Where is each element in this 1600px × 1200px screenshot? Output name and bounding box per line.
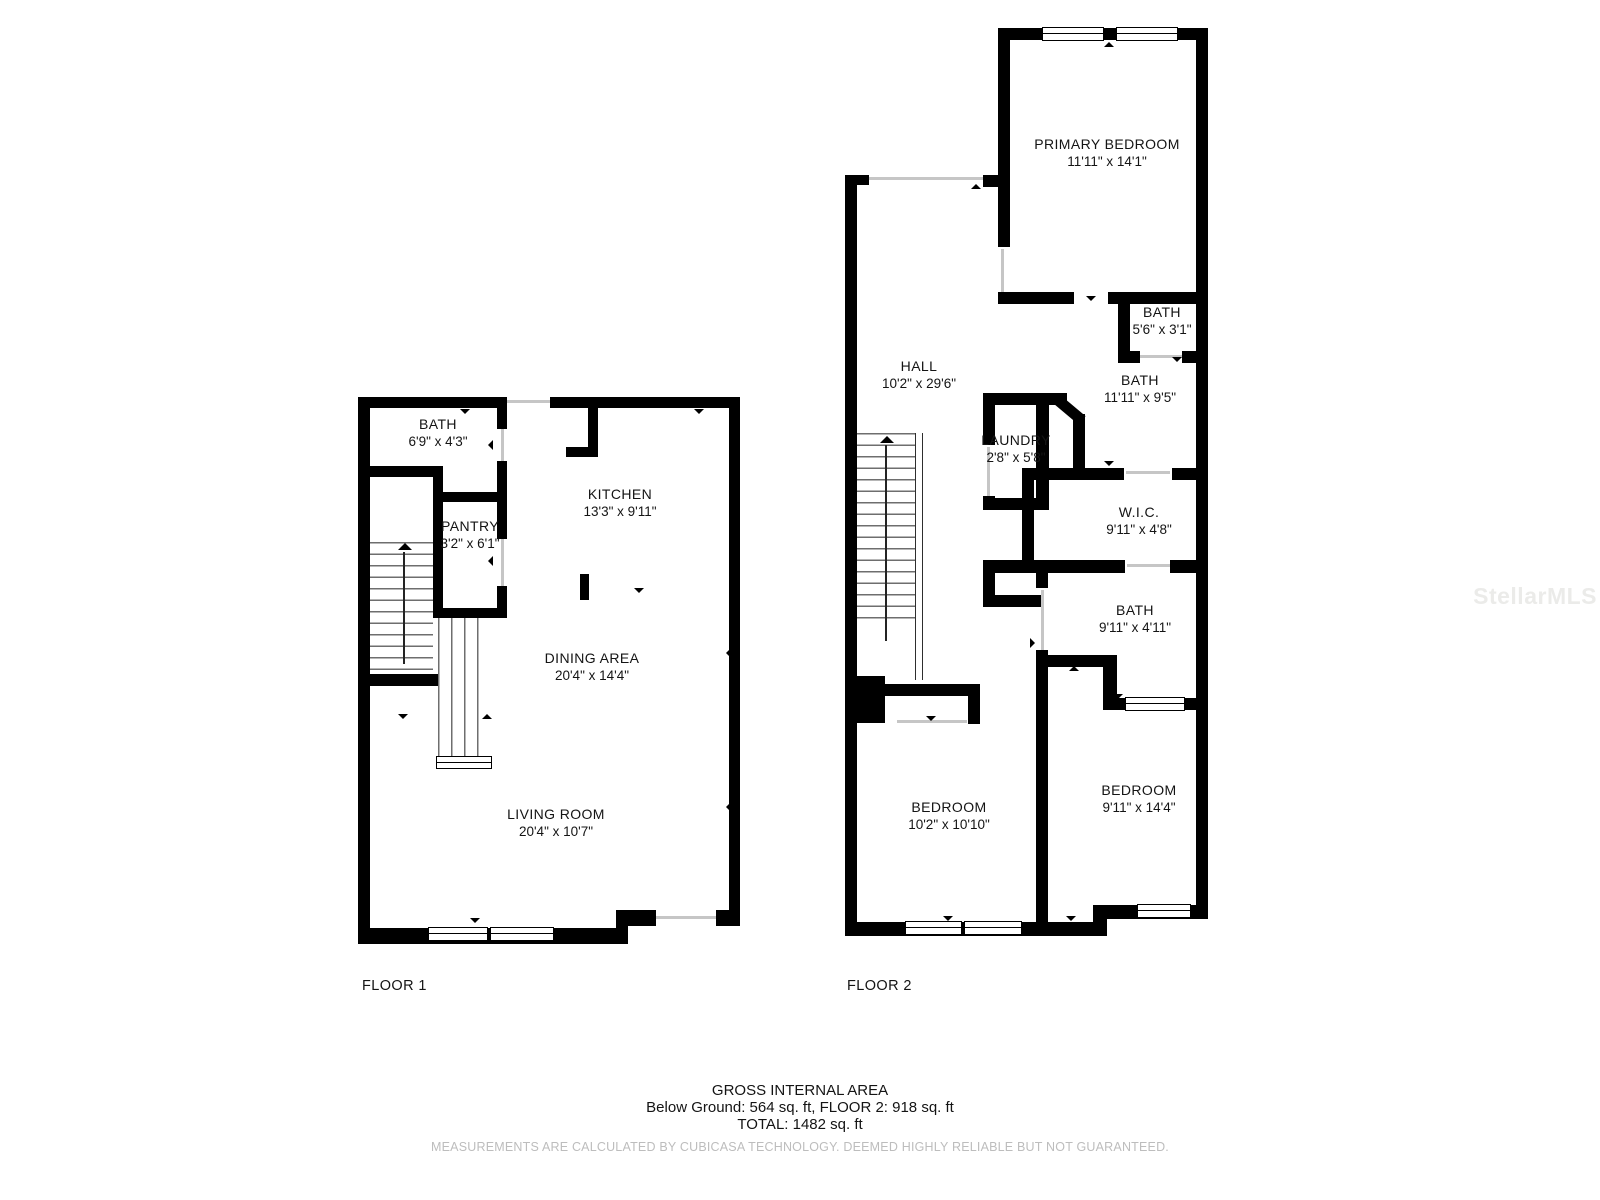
room-dims: 3'2" x 6'1" bbox=[440, 536, 499, 551]
room-name: KITCHEN bbox=[583, 486, 656, 502]
wall bbox=[550, 397, 740, 408]
room-name: PANTRY bbox=[440, 518, 499, 534]
room-label-dining-area: DINING AREA 20'4" x 14'4" bbox=[545, 650, 640, 683]
door-marker bbox=[362, 802, 367, 812]
wall bbox=[1196, 28, 1208, 919]
wall bbox=[1036, 572, 1048, 588]
wall bbox=[616, 910, 628, 944]
room-name: BATH bbox=[408, 416, 467, 432]
door-marker bbox=[1066, 916, 1076, 921]
room-name: LIVING ROOM bbox=[507, 806, 605, 822]
stair-railing bbox=[915, 433, 923, 680]
room-name: BEDROOM bbox=[1101, 782, 1176, 798]
window bbox=[1042, 27, 1104, 41]
room-label-bath-small: BATH 5'6" x 3'1" bbox=[1132, 304, 1191, 337]
door-marker bbox=[488, 556, 493, 566]
room-label-hall: HALL 10'2" x 29'6" bbox=[882, 358, 956, 391]
room-dims: 11'11" x 9'5" bbox=[1104, 390, 1176, 405]
room-name: BATH bbox=[1104, 372, 1176, 388]
room-dims: 10'2" x 29'6" bbox=[882, 376, 956, 391]
door-marker bbox=[1086, 296, 1096, 301]
wall bbox=[497, 397, 507, 429]
staircase-flight bbox=[438, 618, 490, 758]
door-marker bbox=[1172, 357, 1182, 362]
window bbox=[1125, 697, 1185, 711]
room-label-kitchen: KITCHEN 13'3" x 9'11" bbox=[583, 486, 656, 519]
room-dims: 9'11" x 4'8" bbox=[1106, 522, 1172, 537]
window bbox=[905, 921, 962, 935]
wall bbox=[433, 608, 507, 618]
wall bbox=[1022, 468, 1124, 480]
door-marker bbox=[943, 916, 953, 921]
wall bbox=[968, 684, 980, 724]
door-opening bbox=[1001, 249, 1004, 292]
room-label-bedroom-left: BEDROOM 10'2" x 10'10" bbox=[908, 799, 990, 832]
wall bbox=[845, 175, 869, 185]
room-dims: 11'11" x 14'1" bbox=[1034, 154, 1180, 169]
wall bbox=[566, 447, 598, 457]
wall bbox=[998, 292, 1074, 304]
wall bbox=[1073, 414, 1085, 470]
wall bbox=[1036, 650, 1048, 936]
door-marker bbox=[926, 716, 936, 721]
room-dims: 9'11" x 14'4" bbox=[1101, 800, 1176, 815]
room-name: PRIMARY BEDROOM bbox=[1034, 136, 1180, 152]
door-marker bbox=[726, 648, 731, 658]
room-label-bath-main: BATH 11'11" x 9'5" bbox=[1104, 372, 1176, 405]
door-marker bbox=[726, 802, 731, 812]
staircase-flight bbox=[370, 542, 433, 675]
window bbox=[428, 927, 488, 941]
wall bbox=[983, 498, 1049, 510]
door-marker bbox=[1063, 565, 1073, 570]
door-marker bbox=[362, 648, 367, 658]
room-name: DINING AREA bbox=[545, 650, 640, 666]
door-opening bbox=[501, 429, 504, 461]
gross-internal-area-title: GROSS INTERNAL AREA bbox=[0, 1083, 1600, 1099]
door-opening bbox=[507, 400, 550, 403]
stairs-direction-line bbox=[885, 445, 887, 641]
room-dims: 20'4" x 14'4" bbox=[545, 668, 640, 683]
wall bbox=[358, 397, 370, 944]
wall bbox=[884, 684, 980, 696]
stairs-up-arrow bbox=[880, 436, 894, 443]
room-label-primary-bedroom: PRIMARY BEDROOM 11'11" x 14'1" bbox=[1034, 136, 1180, 169]
door-opening bbox=[656, 916, 716, 919]
room-dims: 2'8" x 5'8" bbox=[981, 450, 1050, 465]
room-dims: 9'11" x 4'11" bbox=[1099, 620, 1171, 635]
footer-area-summary: GROSS INTERNAL AREA Below Ground: 564 sq… bbox=[0, 1083, 1600, 1155]
wall bbox=[1048, 922, 1095, 936]
door-marker bbox=[971, 184, 981, 189]
door-marker bbox=[849, 636, 854, 646]
door-marker bbox=[482, 714, 492, 719]
room-name: BATH bbox=[1132, 304, 1191, 320]
room-label-living-room: LIVING ROOM 20'4" x 10'7" bbox=[507, 806, 605, 839]
wall bbox=[983, 595, 1041, 607]
room-name: HALL bbox=[882, 358, 956, 374]
room-dims: 13'3" x 9'11" bbox=[583, 504, 656, 519]
room-dims: 6'9" x 4'3" bbox=[408, 434, 467, 449]
total-area-line: TOTAL: 1482 sq. ft bbox=[0, 1117, 1600, 1133]
wall bbox=[1103, 655, 1117, 710]
stellar-mls-watermark: StellarMLS bbox=[1473, 583, 1597, 610]
window bbox=[490, 927, 554, 941]
door-marker bbox=[488, 440, 493, 450]
floorplan-canvas: BATH 6'9" x 4'3" PANTRY 3'2" x 6'1" KITC… bbox=[0, 0, 1600, 1200]
wall bbox=[1118, 351, 1140, 363]
stairs-up-arrow bbox=[398, 543, 412, 550]
wall bbox=[358, 397, 498, 408]
door-marker bbox=[634, 588, 644, 593]
room-label-bath-third: BATH 9'11" x 4'11" bbox=[1099, 602, 1171, 635]
window bbox=[1137, 904, 1191, 918]
understair-block bbox=[857, 676, 885, 723]
door-marker bbox=[1104, 461, 1114, 466]
door-marker bbox=[470, 918, 480, 923]
door-marker bbox=[1030, 638, 1035, 648]
window bbox=[964, 921, 1022, 935]
wall bbox=[998, 40, 1010, 247]
door-marker bbox=[460, 409, 470, 414]
wall bbox=[1182, 351, 1208, 363]
room-name: BATH bbox=[1099, 602, 1171, 618]
floor1-label: FLOOR 1 bbox=[362, 978, 427, 994]
room-label-wic: W.I.C. 9'11" x 4'8" bbox=[1106, 504, 1172, 537]
door-opening bbox=[1041, 590, 1044, 650]
wall bbox=[995, 560, 1125, 573]
door-opening bbox=[1127, 564, 1170, 567]
wall bbox=[1170, 560, 1196, 573]
window bbox=[1116, 27, 1178, 41]
floor-areas-line: Below Ground: 564 sq. ft, FLOOR 2: 918 s… bbox=[0, 1100, 1600, 1116]
wall bbox=[1022, 468, 1034, 572]
door-marker bbox=[1069, 666, 1079, 671]
door-marker bbox=[1104, 42, 1114, 47]
wall bbox=[845, 175, 857, 936]
room-dims: 20'4" x 10'7" bbox=[507, 824, 605, 839]
room-dims: 10'2" x 10'10" bbox=[908, 817, 990, 832]
door-opening bbox=[869, 177, 983, 180]
door-marker bbox=[462, 496, 472, 501]
kitchen-island-wall bbox=[580, 574, 589, 600]
room-label-pantry: PANTRY 3'2" x 6'1" bbox=[440, 518, 499, 551]
wall bbox=[497, 461, 507, 492]
wall bbox=[358, 466, 442, 477]
measurement-disclaimer: MEASUREMENTS ARE CALCULATED BY CUBICASA … bbox=[0, 1139, 1600, 1155]
room-name: W.I.C. bbox=[1106, 504, 1172, 520]
door-opening bbox=[501, 539, 504, 586]
room-label-bath-f1: BATH 6'9" x 4'3" bbox=[408, 416, 467, 449]
wall bbox=[1172, 468, 1196, 480]
room-name: BEDROOM bbox=[908, 799, 990, 815]
room-label-laundry: LAUNDRY 2'8" x 5'8" bbox=[981, 432, 1050, 465]
floor2-label: FLOOR 2 bbox=[847, 978, 912, 994]
room-label-bedroom-right: BEDROOM 9'11" x 14'4" bbox=[1101, 782, 1176, 815]
door-opening bbox=[1126, 471, 1170, 474]
door-marker bbox=[398, 714, 408, 719]
door-marker bbox=[1113, 694, 1123, 699]
stair-landing bbox=[436, 756, 492, 769]
room-dims: 5'6" x 3'1" bbox=[1132, 322, 1191, 337]
stairs-direction-line bbox=[403, 552, 405, 664]
wall bbox=[358, 674, 438, 686]
room-name: LAUNDRY bbox=[981, 432, 1050, 448]
door-marker bbox=[694, 409, 704, 414]
